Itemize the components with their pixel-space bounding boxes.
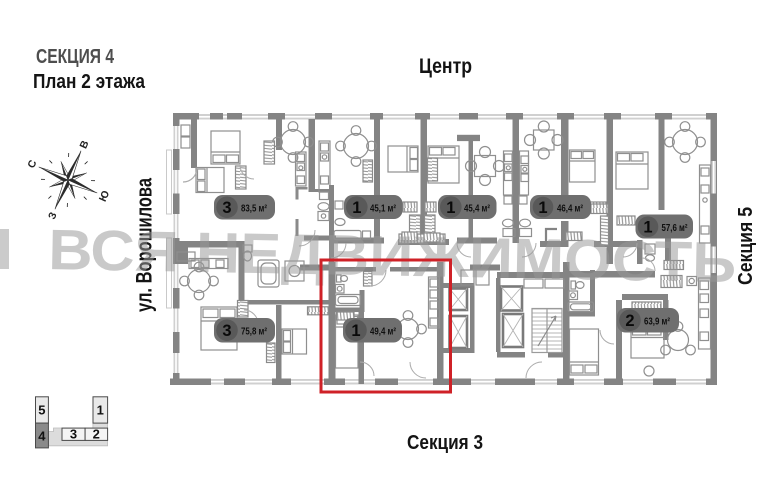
svg-text:1: 1 [97,403,104,418]
svg-text:Секция 3: Секция 3 [407,432,483,454]
svg-text:83,5 м²: 83,5 м² [241,203,267,215]
svg-text:1: 1 [538,199,547,217]
svg-text:45,4 м²: 45,4 м² [464,202,490,214]
svg-text:Центр: Центр [419,55,472,78]
svg-text:2: 2 [625,312,634,330]
svg-text:1: 1 [643,219,652,237]
svg-text:4: 4 [38,429,46,444]
svg-text:45,1 м²: 45,1 м² [370,202,396,214]
svg-text:1: 1 [351,322,360,340]
svg-text:46,4 м²: 46,4 м² [557,202,583,214]
svg-text:63,9 м²: 63,9 м² [644,316,670,328]
svg-text:5: 5 [38,403,45,418]
svg-text:3: 3 [222,199,231,217]
svg-text:1: 1 [446,199,455,217]
svg-text:3: 3 [222,322,231,340]
svg-text:3: 3 [70,427,77,442]
svg-text:План 2 этажа: План 2 этажа [33,71,146,93]
svg-text:75,8 м²: 75,8 м² [241,326,267,338]
svg-text:57,6 м²: 57,6 м² [662,222,688,234]
svg-text:ВСЯ НЕДВИЖИМОСТЬ: ВСЯ НЕДВИЖИМОСТЬ [48,218,737,295]
svg-text:49,4 м²: 49,4 м² [370,326,396,338]
svg-text:2: 2 [93,427,100,442]
svg-text:1: 1 [352,199,361,217]
svg-text:СЕКЦИЯ 4: СЕКЦИЯ 4 [36,46,115,68]
svg-text:Секция 5: Секция 5 [735,207,757,285]
